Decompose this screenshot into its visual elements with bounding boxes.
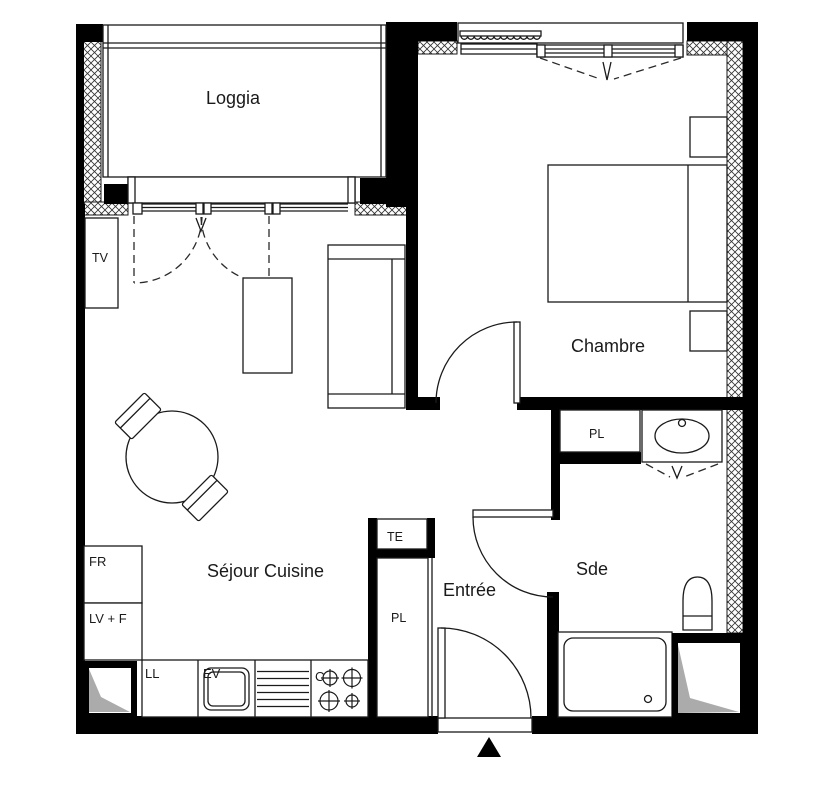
fixture-label-electrical-box: TE: [387, 530, 403, 544]
loggia-structure: [103, 25, 386, 283]
window-mullion: [604, 45, 612, 57]
fixture-label-cooktop: C: [315, 669, 324, 684]
wall-segment: [76, 24, 84, 204]
window-post: [675, 45, 683, 57]
wall-segment: [377, 549, 427, 558]
room-label-entree: Entrée: [443, 580, 496, 600]
wall-segment: [368, 518, 377, 718]
fixture-label-fridge: FR: [89, 554, 106, 569]
wall-segment: [551, 452, 641, 464]
window-swing: [540, 58, 600, 79]
entree-closet: [377, 558, 428, 717]
washbasin-mark: [672, 466, 682, 478]
window-post: [537, 45, 545, 57]
nightstand: [690, 311, 727, 351]
floor-plan-page: Loggia Chambre Séjour Cuisine Entrée Sde…: [0, 0, 830, 792]
bay-window-mullion: [204, 203, 211, 214]
sejour-furniture: [85, 218, 405, 521]
fixture-label-dishwasher-oven: LV + F: [89, 611, 127, 626]
room-label-loggia: Loggia: [206, 88, 261, 108]
bay-window-mullion: [273, 203, 280, 214]
fixture-label-closet-chambre: PL: [589, 427, 604, 441]
fixture-label-closet-entree: PL: [391, 611, 406, 625]
hatched-wall-right: [727, 41, 743, 633]
washbasin-counter: [642, 410, 722, 462]
front-door-leaf: [438, 628, 445, 718]
bay-door-swing-arc: [134, 217, 202, 283]
nightstand: [690, 117, 727, 157]
floor-plan-canvas: Loggia Chambre Séjour Cuisine Entrée Sde…: [0, 0, 830, 792]
coffee-table: [243, 278, 292, 373]
wall-segment: [743, 22, 758, 734]
front-door-arc: [441, 628, 531, 718]
fixture-label-tv: TV: [92, 251, 109, 265]
door-threshold: [438, 718, 532, 732]
wall-segment: [360, 178, 388, 204]
bay-window-mullion: [196, 203, 203, 214]
hatched-wall-window-left: [418, 41, 457, 54]
bay-window-post: [128, 177, 135, 203]
fixture-label-kitchen-sink: EV: [203, 666, 221, 681]
window-swing: [614, 58, 681, 79]
wall-segment: [547, 592, 559, 718]
chambre-window: [458, 23, 683, 80]
fixture-label-washing-machine: LL: [145, 666, 159, 681]
window-meet-mark: [603, 62, 611, 80]
room-label-sejour-cuisine: Séjour Cuisine: [207, 561, 324, 581]
hatched-wall-loggia-left: [83, 41, 101, 204]
wall-segment: [427, 518, 435, 558]
washbasin-swing: [646, 464, 670, 477]
sde-door-leaf: [473, 510, 553, 517]
bay-window-post: [348, 177, 355, 203]
bay-window-recess: [128, 177, 355, 203]
wall-segment: [386, 23, 418, 207]
room-label-sde: Sde: [576, 559, 608, 579]
shower-outline: [558, 632, 672, 717]
bay-door-swing-arc: [201, 217, 269, 283]
sofa: [328, 245, 405, 408]
hatched-wall-window-right: [687, 41, 728, 55]
shutter-box: [460, 31, 541, 36]
wall-segment: [687, 22, 758, 41]
washbasin-swing: [684, 464, 718, 477]
chambre-door-leaf: [514, 322, 520, 403]
wall-column: [104, 184, 128, 204]
chambre-door-arc: [436, 322, 517, 403]
toilet: [683, 577, 712, 630]
room-label-chambre: Chambre: [571, 336, 645, 356]
entrance-marker: [477, 737, 501, 757]
bay-window-mullion: [133, 203, 142, 214]
bed: [548, 165, 727, 302]
wall-segment: [406, 207, 418, 410]
bay-window-mullion: [265, 203, 272, 214]
